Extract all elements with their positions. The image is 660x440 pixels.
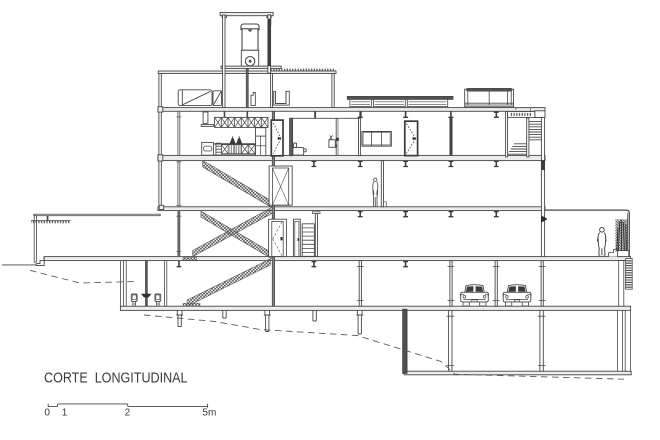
- svg-text:0: 0: [44, 407, 50, 418]
- svg-text:CORTE LONGITUDINAL: CORTE LONGITUDINAL: [44, 369, 188, 386]
- svg-text:2: 2: [125, 407, 131, 418]
- svg-text:5m: 5m: [202, 407, 216, 418]
- svg-text:1: 1: [62, 407, 68, 418]
